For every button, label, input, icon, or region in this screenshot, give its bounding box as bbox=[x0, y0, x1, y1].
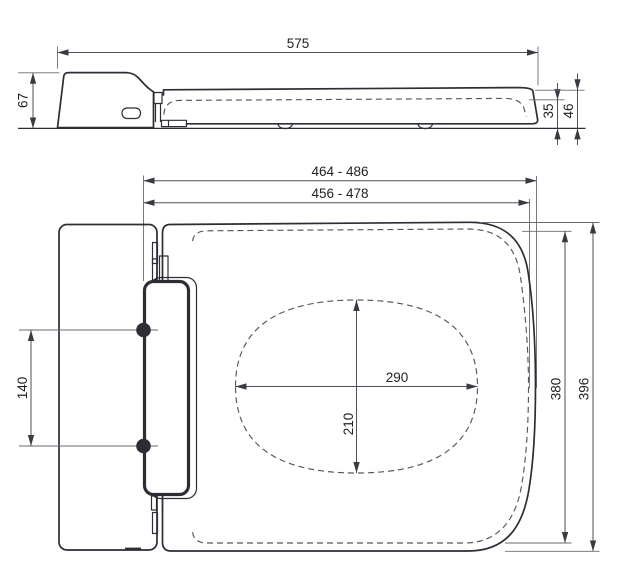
plan-view: 290 210 140 464 - 486 456 - 4 bbox=[15, 164, 600, 551]
lid-outline bbox=[59, 225, 157, 551]
dim-label-hinge-centers: 140 bbox=[15, 377, 30, 400]
dim-height-front-inner: 35 bbox=[529, 83, 565, 145]
hinge-cap-profile bbox=[58, 73, 154, 128]
side-view: 575 67 35 46 bbox=[16, 36, 586, 145]
dim-depth-outer: 396 bbox=[480, 223, 600, 552]
dim-width-outer: 464 - 486 bbox=[144, 164, 537, 181]
dim-label-depth-outer: 396 bbox=[577, 378, 592, 401]
dim-label-height-front-outer: 46 bbox=[561, 103, 576, 118]
dim-label-height-front-inner: 35 bbox=[541, 103, 556, 118]
dim-height-rear: 67 bbox=[16, 73, 60, 129]
dim-hinge-centers: 140 bbox=[15, 330, 31, 446]
dim-label-length: 575 bbox=[287, 36, 310, 51]
technical-drawing-canvas: 575 67 35 46 bbox=[0, 0, 636, 579]
dim-depth-inner: 380 bbox=[505, 231, 572, 543]
dim-label-opening-depth: 210 bbox=[341, 413, 356, 436]
hidden-seat-ring bbox=[164, 98, 526, 116]
dim-label-opening-width: 290 bbox=[386, 370, 409, 385]
hinge-bolt-top bbox=[136, 323, 151, 338]
hinge-bolt-bottom bbox=[136, 439, 151, 454]
dim-label-height-rear: 67 bbox=[16, 93, 31, 108]
hinge-foot bbox=[162, 120, 187, 126]
dim-width-inner: 456 - 478 bbox=[144, 186, 530, 203]
hinge-bar bbox=[145, 282, 189, 495]
lid-bottom-mark bbox=[125, 548, 141, 551]
hinge-lines bbox=[156, 104, 161, 123]
hinge-lug-bottom bbox=[152, 496, 157, 510]
seat-lid-profile bbox=[164, 88, 538, 124]
dim-label-width-inner: 456 - 478 bbox=[311, 186, 368, 201]
seat-dimension-drawing: 575 67 35 46 bbox=[0, 0, 636, 579]
dim-label-depth-inner: 380 bbox=[549, 378, 564, 401]
bolt-axis-lines bbox=[19, 330, 158, 446]
dim-label-width-outer: 464 - 486 bbox=[311, 164, 368, 179]
hinge-strip bbox=[154, 93, 162, 104]
